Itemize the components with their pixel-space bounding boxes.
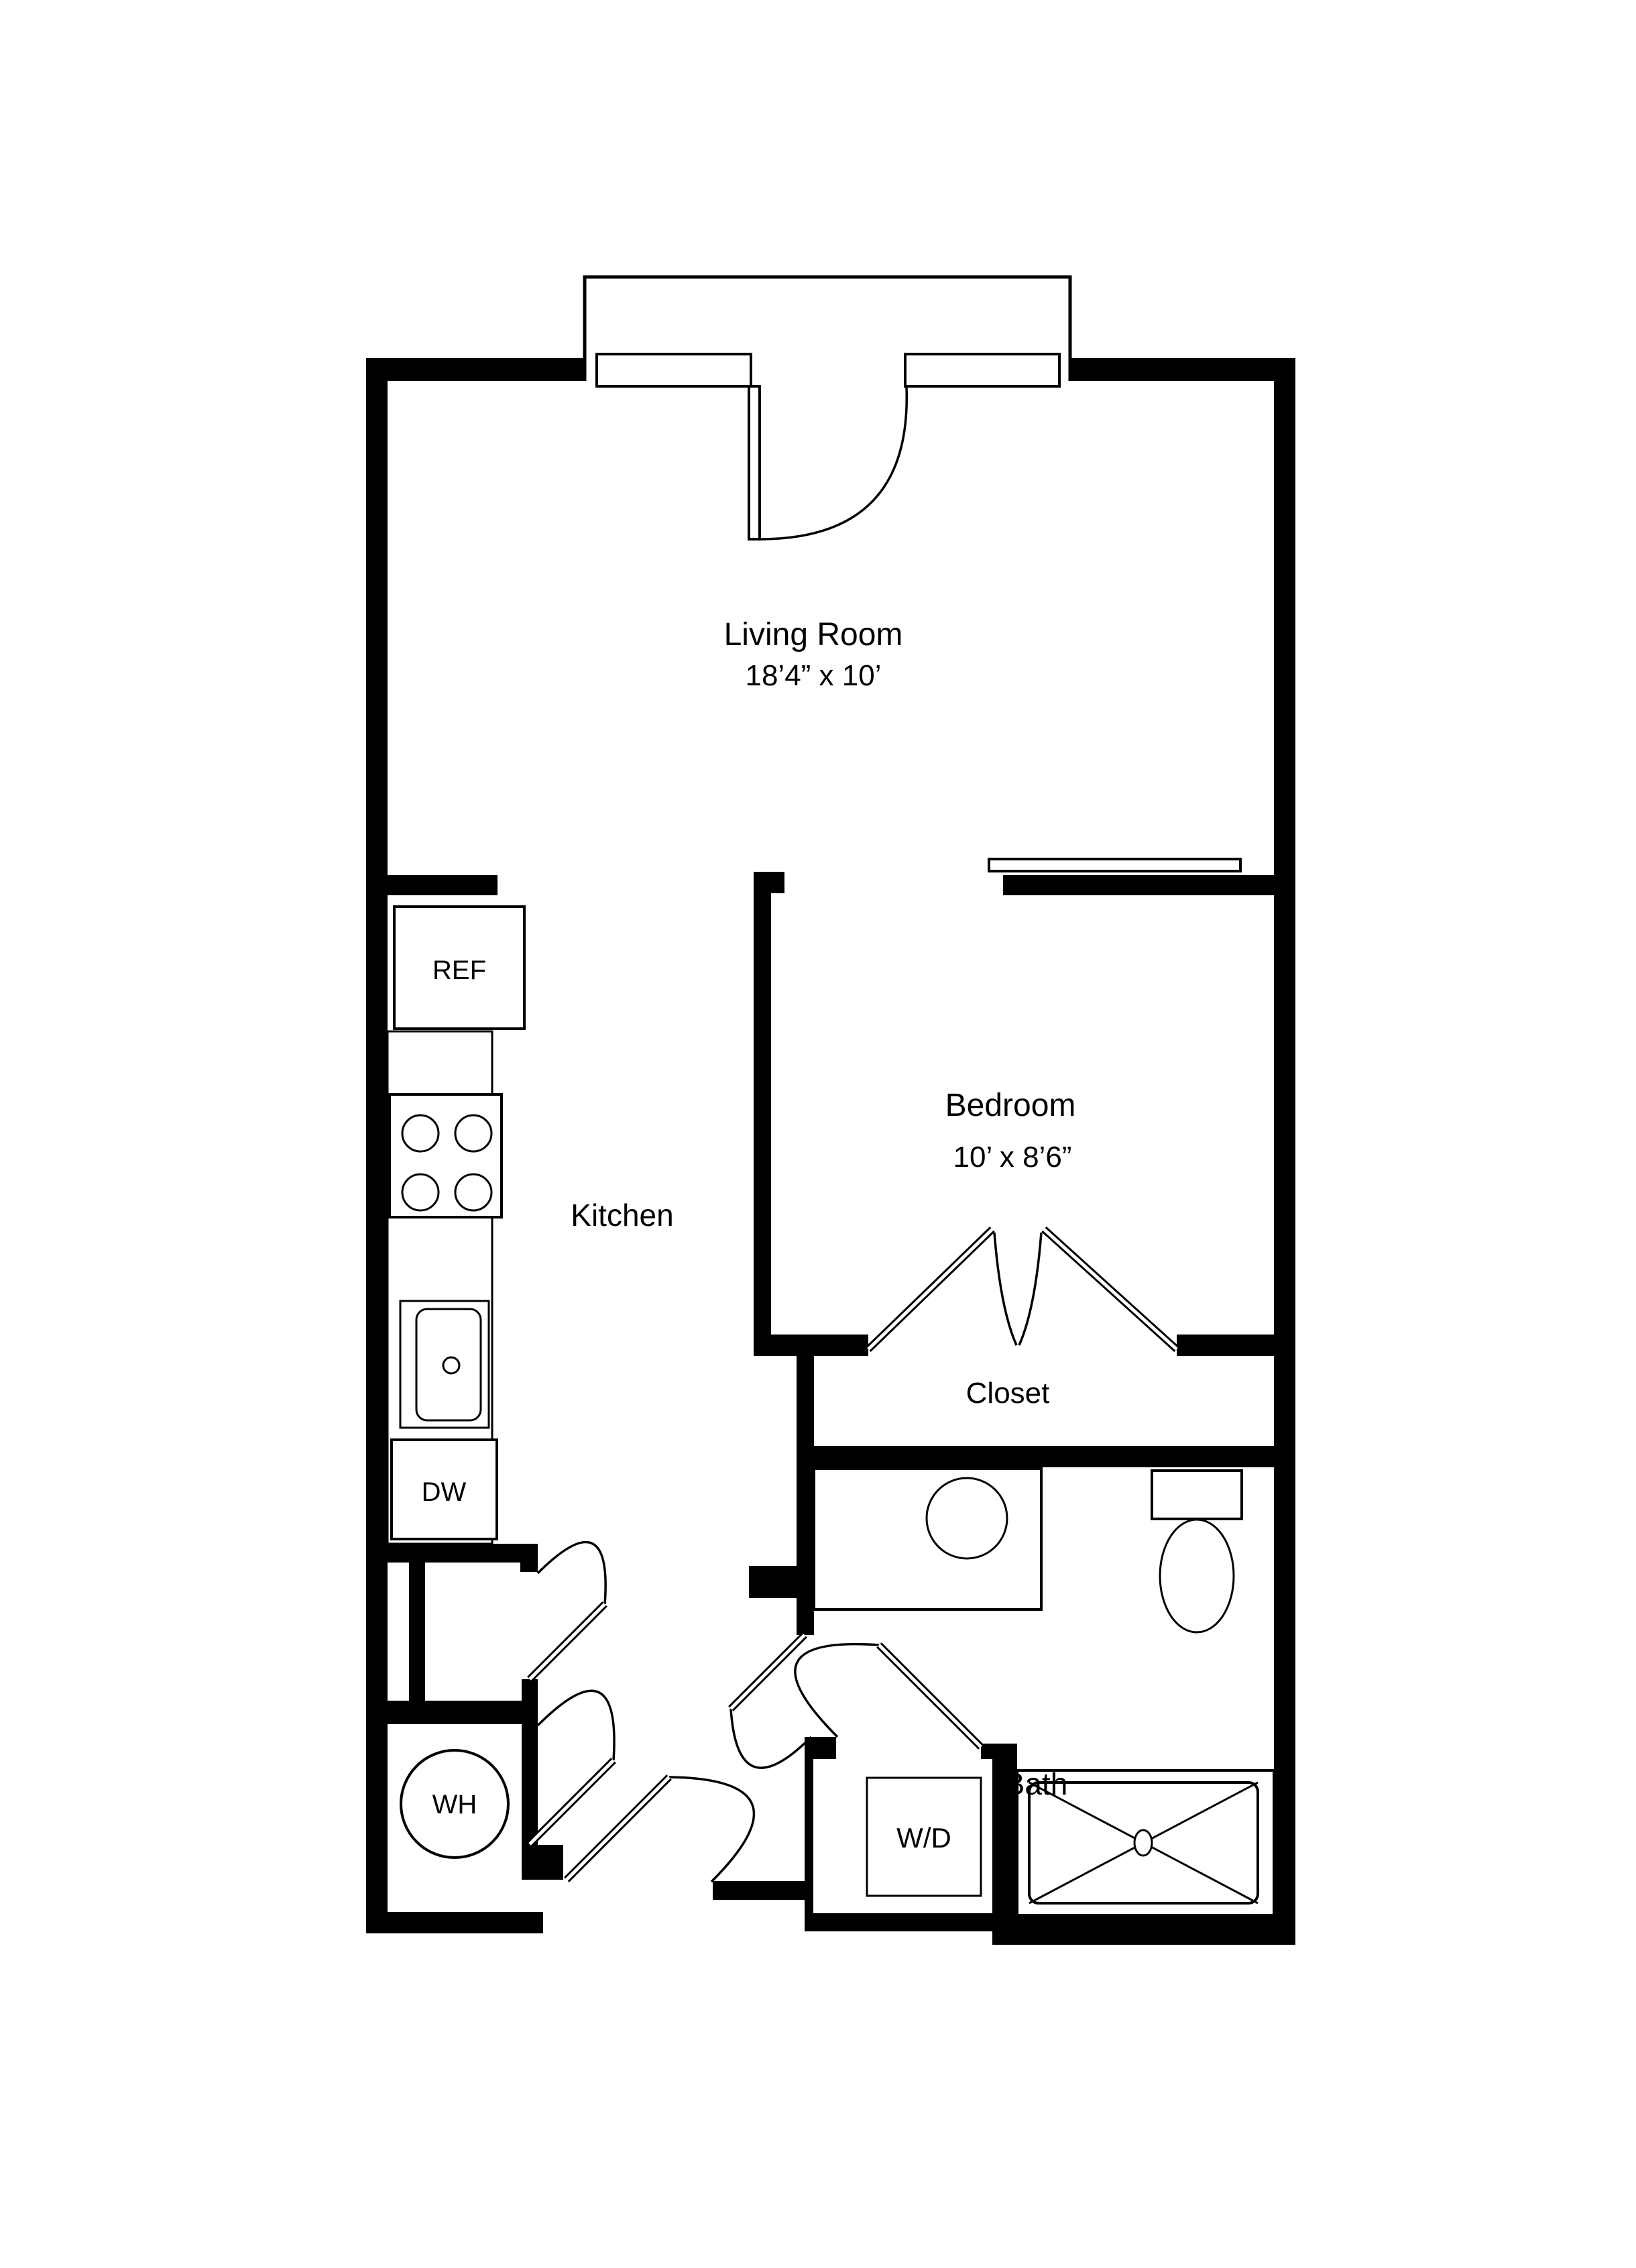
wall-wh-bottom: [366, 1912, 543, 1933]
wall-closet-top-left: [754, 1335, 868, 1356]
water-heater-label: WH: [432, 1790, 477, 1819]
wall-closet-bottom: [797, 1446, 1295, 1467]
closet-bifold-doors: [868, 1229, 1177, 1349]
entry-threshold-left: [597, 354, 751, 386]
coat-closet-door-arc: [538, 1542, 605, 1604]
bath-fixtures: [814, 1469, 1274, 1915]
entry-door-leaf: [749, 386, 760, 539]
toilet-tank: [1152, 1471, 1242, 1519]
wall-wh-right: [522, 1724, 538, 1845]
labels: Living Room 18’4” x 10’ Kitchen Bedroom …: [422, 617, 1076, 1854]
wall-wd-left: [805, 1737, 813, 1915]
vanity-counter: [814, 1469, 1041, 1609]
wall-wh-jamb-block: [522, 1845, 563, 1880]
wall-coat-closet-jamb-bottom: [522, 1679, 538, 1703]
living-room-dimensions: 18’4” x 10’: [745, 659, 881, 692]
wall-hall-bottom: [713, 1881, 805, 1900]
wh-door-arc: [538, 1691, 614, 1760]
toilet-bowl: [1160, 1520, 1234, 1632]
wall-bedroom-top: [1003, 875, 1295, 895]
wall-bedroom-jamb-cap: [754, 872, 784, 893]
closet-bifold-fold-left: [994, 1233, 1016, 1345]
entry-threshold-right: [905, 354, 1059, 386]
bedroom-sliding-door-leaf: [989, 859, 1240, 871]
wall-left: [366, 358, 388, 1933]
shower-drain: [1134, 1830, 1152, 1856]
stove-burner-icon: [455, 1115, 491, 1151]
walls: [366, 358, 1295, 1945]
wall-wd-jamb-left: [813, 1737, 836, 1759]
entry: [585, 277, 1070, 539]
kitchen-label: Kitchen: [571, 1198, 673, 1233]
kitchen-sink-drain: [443, 1357, 459, 1373]
wall-closet-left: [797, 1356, 814, 1446]
floor-plan: Living Room 18’4” x 10’ Kitchen Bedroom …: [0, 0, 1636, 2268]
wall-top-left: [366, 358, 593, 381]
closet-label: Closet: [966, 1377, 1050, 1410]
wall-wd-bottom: [805, 1913, 992, 1931]
wall-kitchen-top: [366, 875, 498, 895]
bedroom-dimensions: 10’ x 8’6”: [953, 1141, 1072, 1174]
wall-coat-closet-jamb-top: [520, 1544, 538, 1572]
wall-closet-wh-divider: [388, 1701, 538, 1724]
floor-plan-svg: Living Room 18’4” x 10’ Kitchen Bedroom …: [0, 0, 1636, 2268]
refrigerator-label: REF: [432, 956, 486, 985]
bedroom-sliding-door: [989, 859, 1240, 871]
bath-label: Bath: [1004, 1766, 1068, 1801]
hall-door-arc: [669, 1777, 754, 1882]
wall-bath-bottom: [992, 1917, 1295, 1945]
entry-door-swing-arc: [760, 388, 907, 539]
living-room-label: Living Room: [724, 617, 903, 653]
wall-hall-top: [388, 1544, 536, 1563]
stove-burner-icon: [455, 1174, 491, 1210]
wall-hall-stub: [749, 1566, 797, 1598]
wall-wd-jamb-right: [981, 1744, 992, 1759]
washer-dryer-label: W/D: [896, 1822, 951, 1854]
bath-door-arc: [731, 1709, 811, 1768]
wall-top-right: [1058, 358, 1295, 381]
wall-bath-left: [797, 1467, 814, 1635]
wall-bedroom-left: [754, 892, 771, 1335]
wall-chase-strip: [409, 1563, 425, 1703]
stove-burner-icon: [402, 1115, 439, 1151]
bedroom-label: Bedroom: [945, 1088, 1076, 1123]
stove-burner-icon: [402, 1174, 439, 1210]
kitchen-fixtures: [388, 907, 524, 1544]
closet-bifold-fold-right: [1019, 1233, 1041, 1345]
wall-closet-top-right: [1177, 1335, 1295, 1356]
wd-door-arc: [795, 1644, 879, 1737]
wall-right: [1274, 358, 1295, 1945]
vanity-sink-basin: [927, 1478, 1007, 1558]
dishwasher-label: DW: [422, 1477, 467, 1507]
